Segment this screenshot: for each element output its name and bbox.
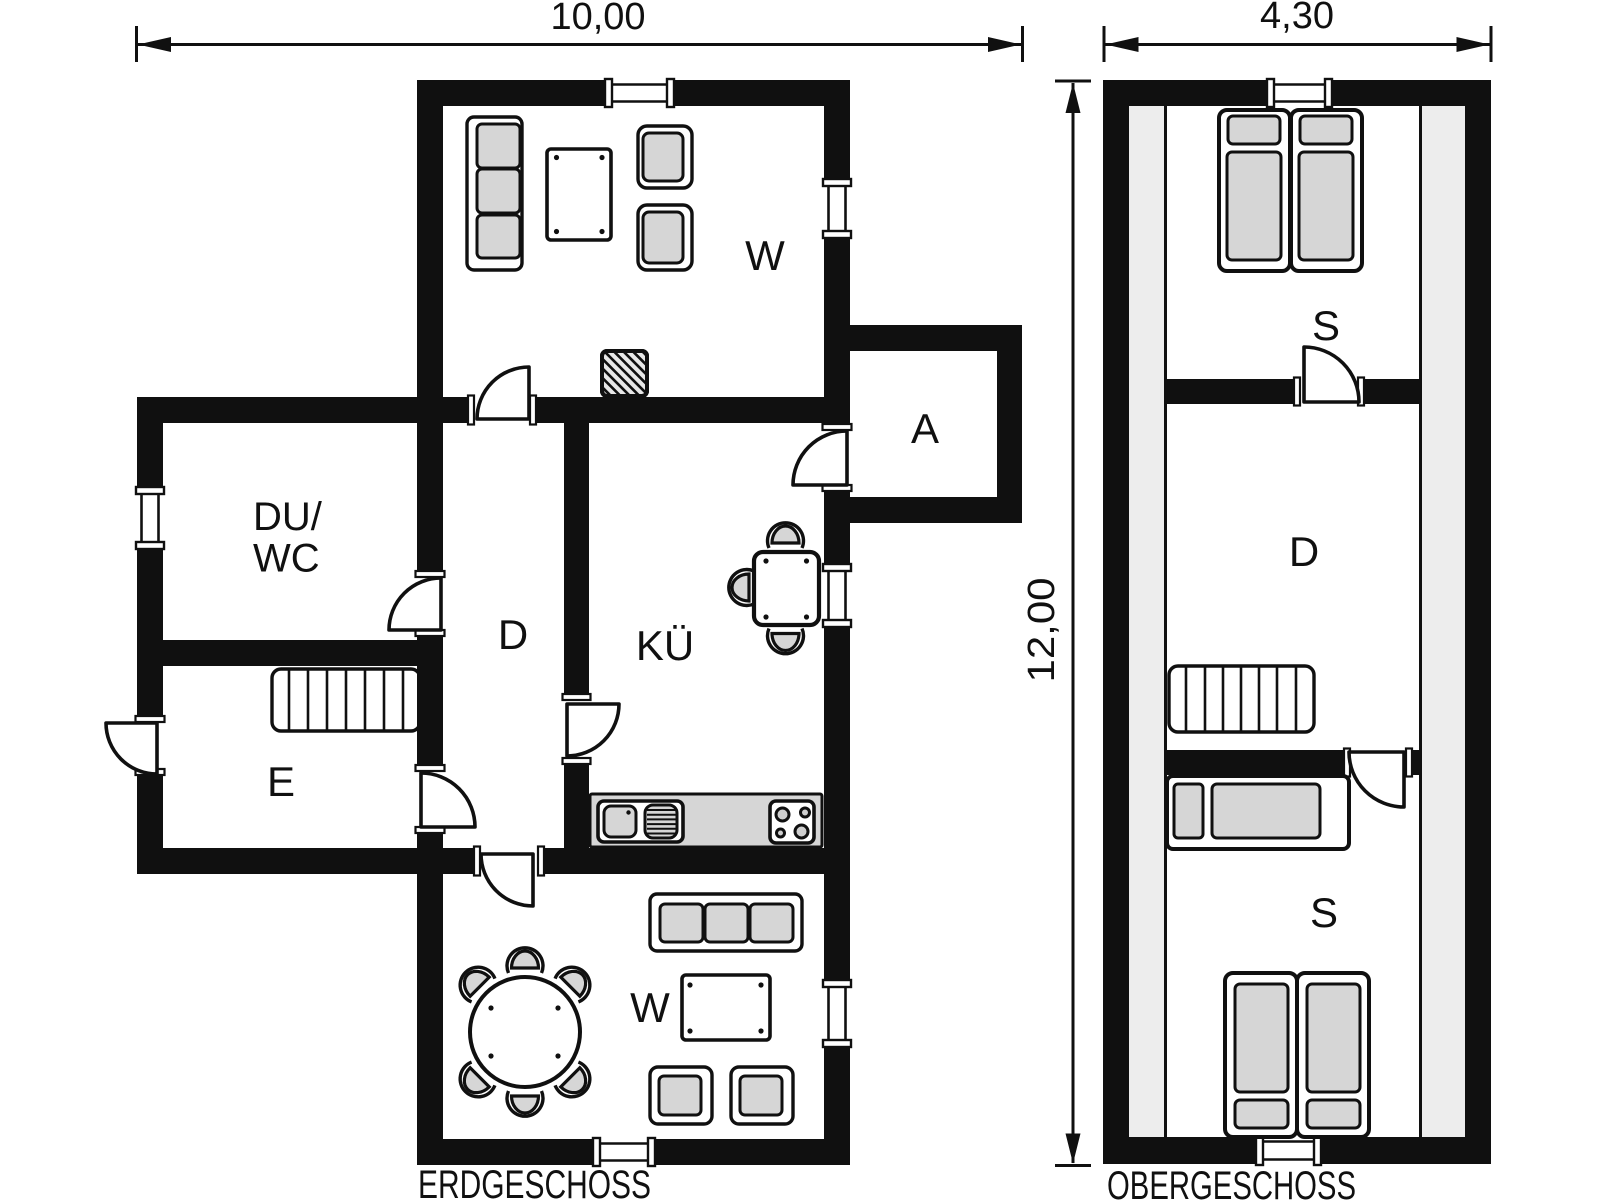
svg-text:10,00: 10,00 [550, 0, 645, 38]
svg-text:A: A [911, 405, 939, 452]
svg-text:DU/: DU/ [253, 495, 323, 539]
svg-text:W: W [630, 984, 670, 1031]
svg-text:4,30: 4,30 [1260, 0, 1334, 37]
svg-text:E: E [267, 758, 295, 805]
svg-text:D: D [498, 611, 528, 658]
svg-text:12,00: 12,00 [1021, 578, 1063, 683]
svg-text:S: S [1312, 302, 1340, 349]
svg-text:ERDGESCHOSS: ERDGESCHOSS [418, 1163, 651, 1200]
svg-text:WC: WC [253, 537, 320, 581]
svg-text:S: S [1310, 889, 1338, 936]
svg-text:KÜ: KÜ [636, 622, 694, 669]
svg-text:D: D [1289, 528, 1319, 575]
svg-text:OBERGESCHOSS: OBERGESCHOSS [1107, 1164, 1356, 1200]
svg-text:W: W [745, 232, 785, 279]
